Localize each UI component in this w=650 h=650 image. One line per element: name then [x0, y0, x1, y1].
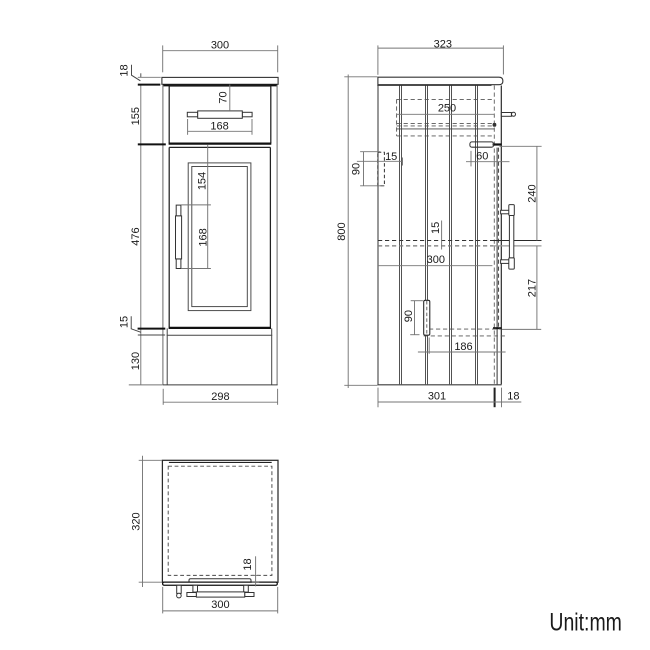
svg-text:300: 300 [427, 254, 445, 266]
svg-text:90: 90 [350, 163, 362, 175]
svg-text:90: 90 [403, 310, 415, 322]
svg-text:240: 240 [527, 184, 539, 202]
svg-text:168: 168 [210, 120, 228, 132]
svg-text:60: 60 [476, 151, 488, 163]
svg-text:15: 15 [385, 151, 397, 163]
svg-text:15: 15 [430, 222, 442, 234]
svg-text:Unit:mm: Unit:mm [549, 609, 622, 637]
svg-text:298: 298 [211, 391, 229, 403]
svg-text:15: 15 [119, 316, 131, 328]
svg-text:155: 155 [130, 107, 142, 125]
svg-text:18: 18 [507, 391, 519, 403]
svg-text:300: 300 [211, 599, 229, 611]
svg-text:476: 476 [130, 227, 142, 245]
svg-text:18: 18 [118, 64, 130, 76]
svg-text:186: 186 [454, 341, 472, 353]
svg-text:217: 217 [526, 279, 538, 297]
svg-text:130: 130 [130, 352, 142, 370]
svg-text:300: 300 [211, 39, 229, 51]
svg-text:301: 301 [428, 391, 446, 403]
svg-text:154: 154 [196, 172, 208, 190]
svg-text:70: 70 [218, 91, 230, 103]
svg-text:18: 18 [242, 558, 254, 570]
svg-text:320: 320 [130, 512, 142, 530]
svg-text:323: 323 [434, 38, 452, 50]
svg-text:168: 168 [198, 228, 210, 246]
svg-text:800: 800 [336, 222, 348, 240]
svg-text:250: 250 [438, 102, 456, 114]
